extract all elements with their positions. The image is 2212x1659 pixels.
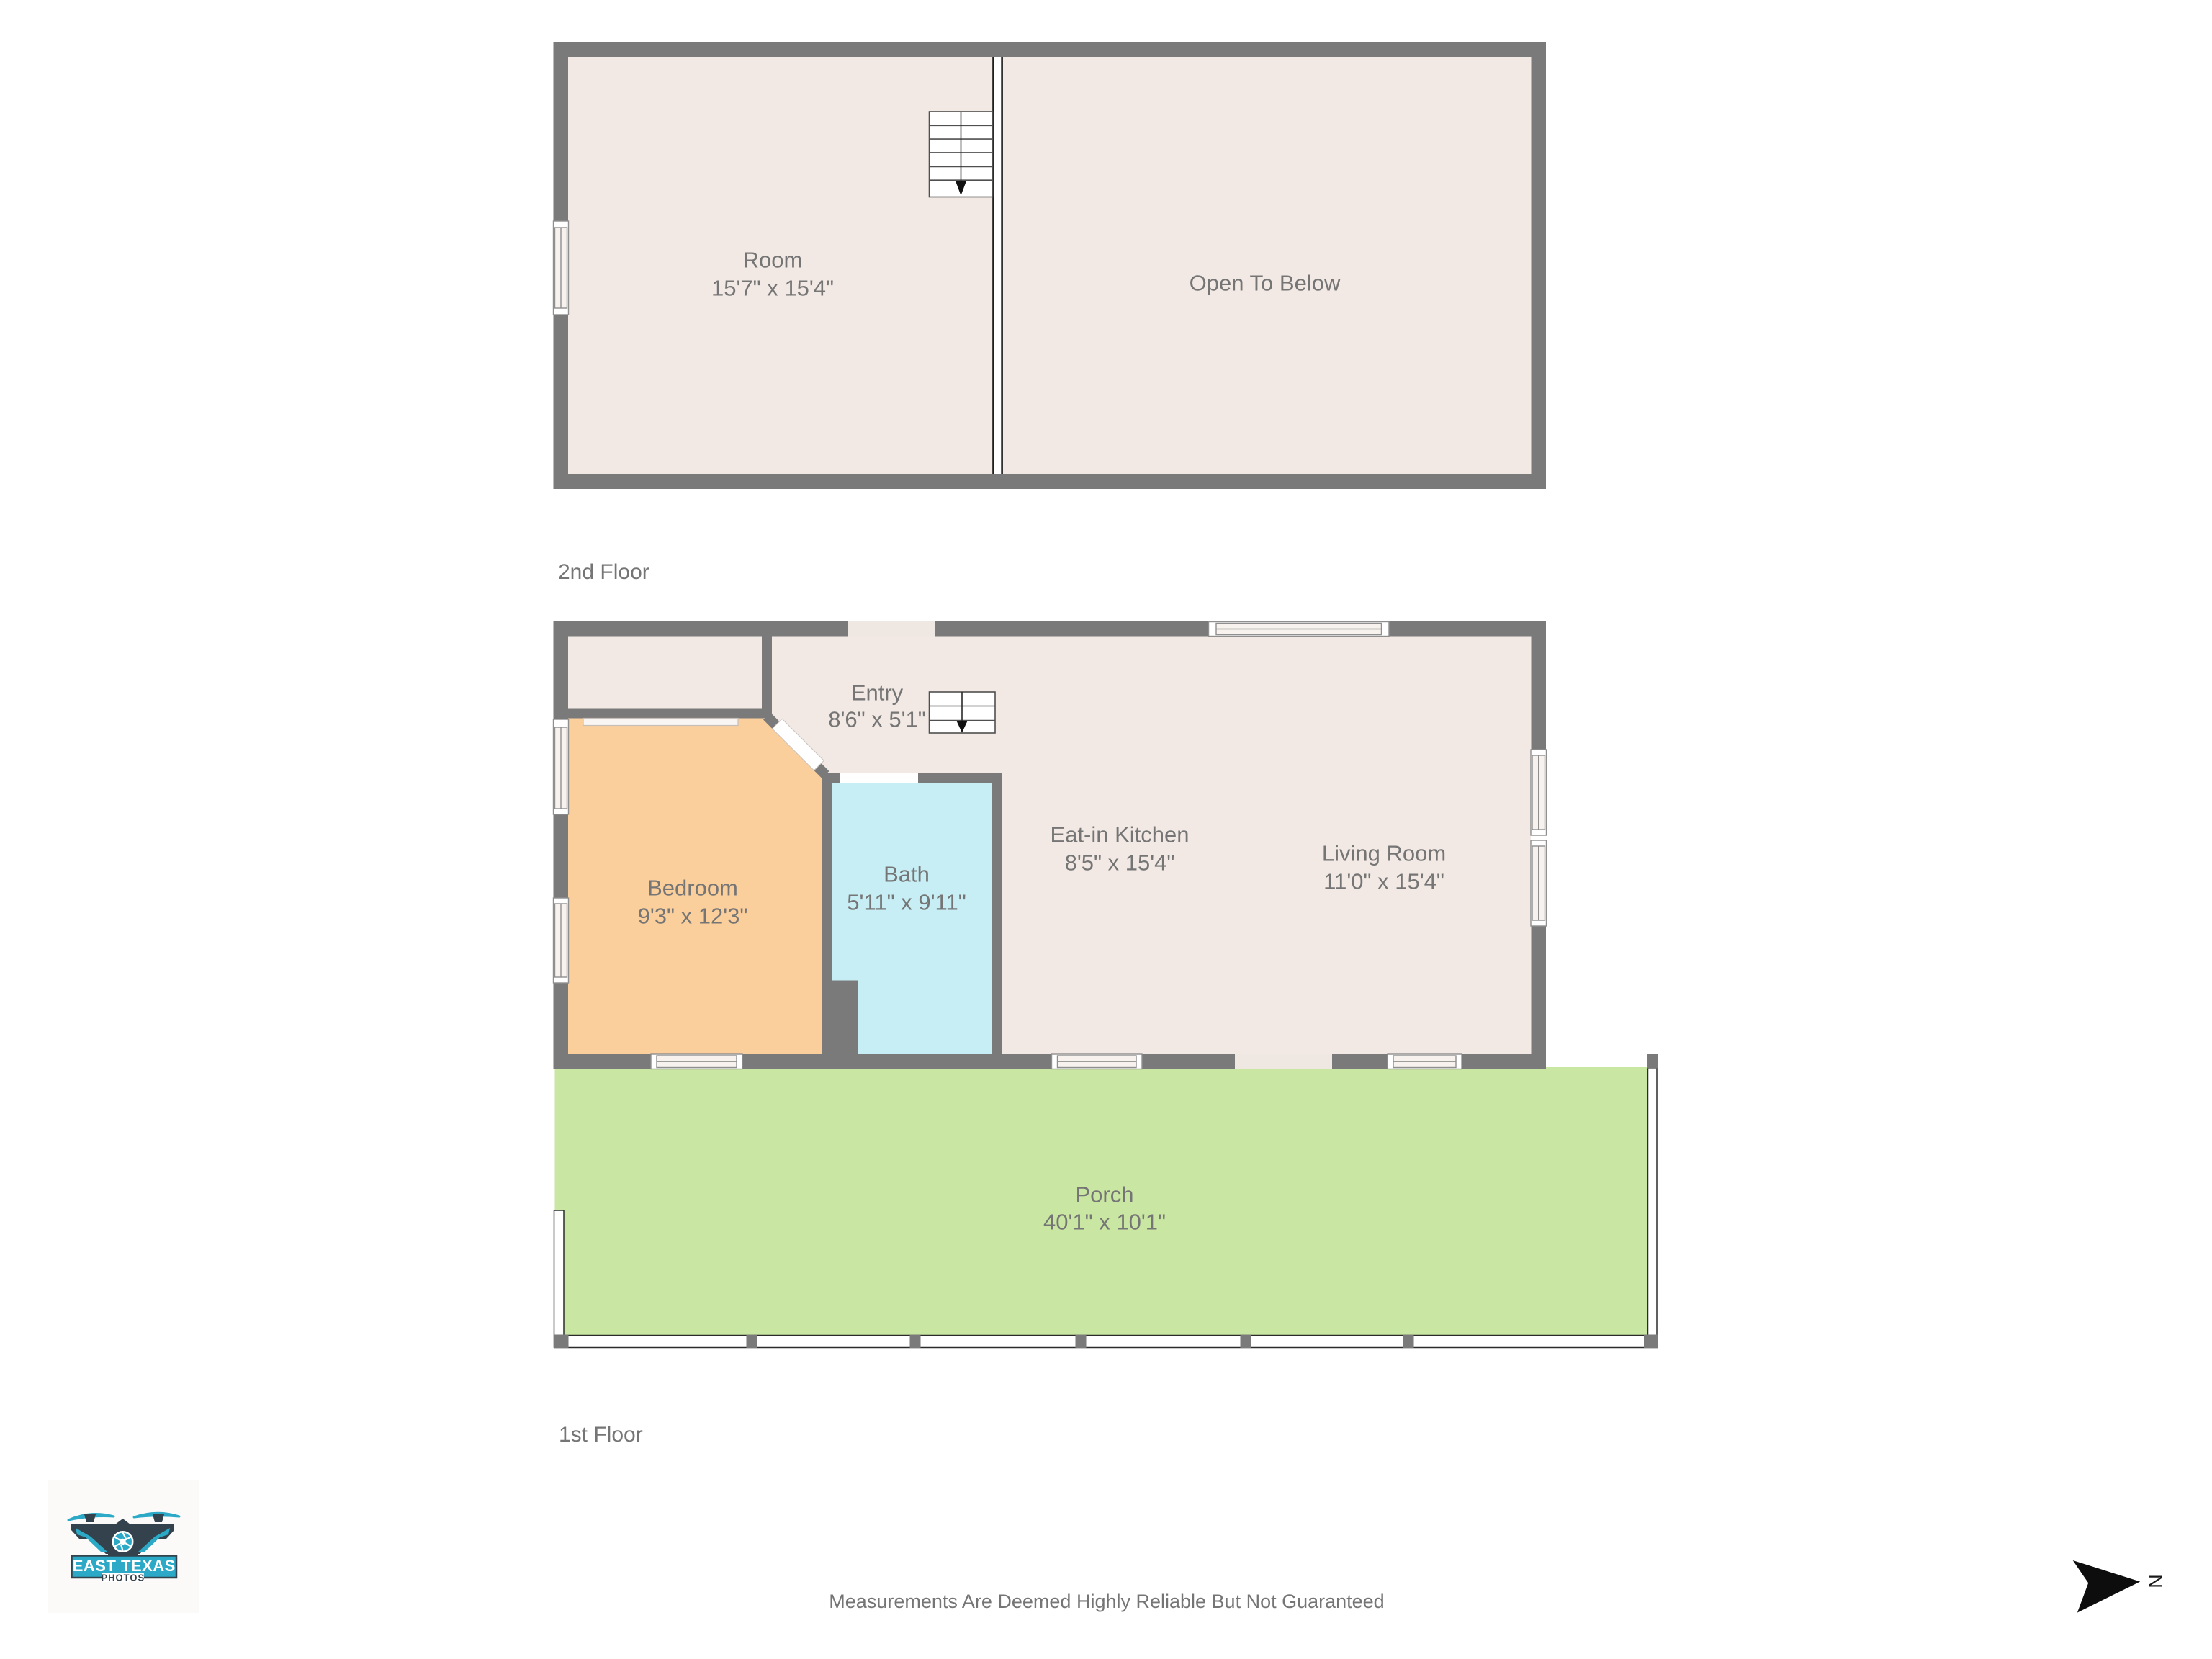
svg-text:5'11" x 9'11": 5'11" x 9'11" — [847, 890, 966, 915]
svg-text:Living Room: Living Room — [1322, 841, 1446, 866]
svg-text:Open To Below: Open To Below — [1190, 271, 1341, 296]
svg-text:40'1" x 10'1": 40'1" x 10'1" — [1043, 1210, 1166, 1235]
svg-text:8'6" x 5'1": 8'6" x 5'1" — [828, 707, 926, 732]
svg-text:1st Floor: 1st Floor — [559, 1423, 643, 1447]
svg-text:Entry: Entry — [851, 680, 904, 706]
svg-text:Room: Room — [743, 248, 803, 273]
svg-text:Bedroom: Bedroom — [647, 876, 738, 901]
svg-text:Measurements Are Deemed Highly: Measurements Are Deemed Highly Reliable … — [829, 1591, 1384, 1612]
svg-text:8'5" x 15'4": 8'5" x 15'4" — [1065, 850, 1175, 876]
svg-text:9'3" x 12'3": 9'3" x 12'3" — [638, 904, 748, 929]
svg-text:2nd Floor: 2nd Floor — [558, 560, 649, 584]
svg-text:PHOTOS: PHOTOS — [101, 1572, 145, 1583]
svg-text:N: N — [2145, 1574, 2167, 1588]
svg-text:11'0" x 15'4": 11'0" x 15'4" — [1323, 869, 1444, 894]
svg-text:15'7" x 15'4": 15'7" x 15'4" — [711, 276, 834, 301]
svg-text:Porch: Porch — [1076, 1182, 1134, 1208]
svg-text:Eat-in Kitchen: Eat-in Kitchen — [1051, 822, 1190, 848]
svg-text:Bath: Bath — [884, 862, 930, 887]
